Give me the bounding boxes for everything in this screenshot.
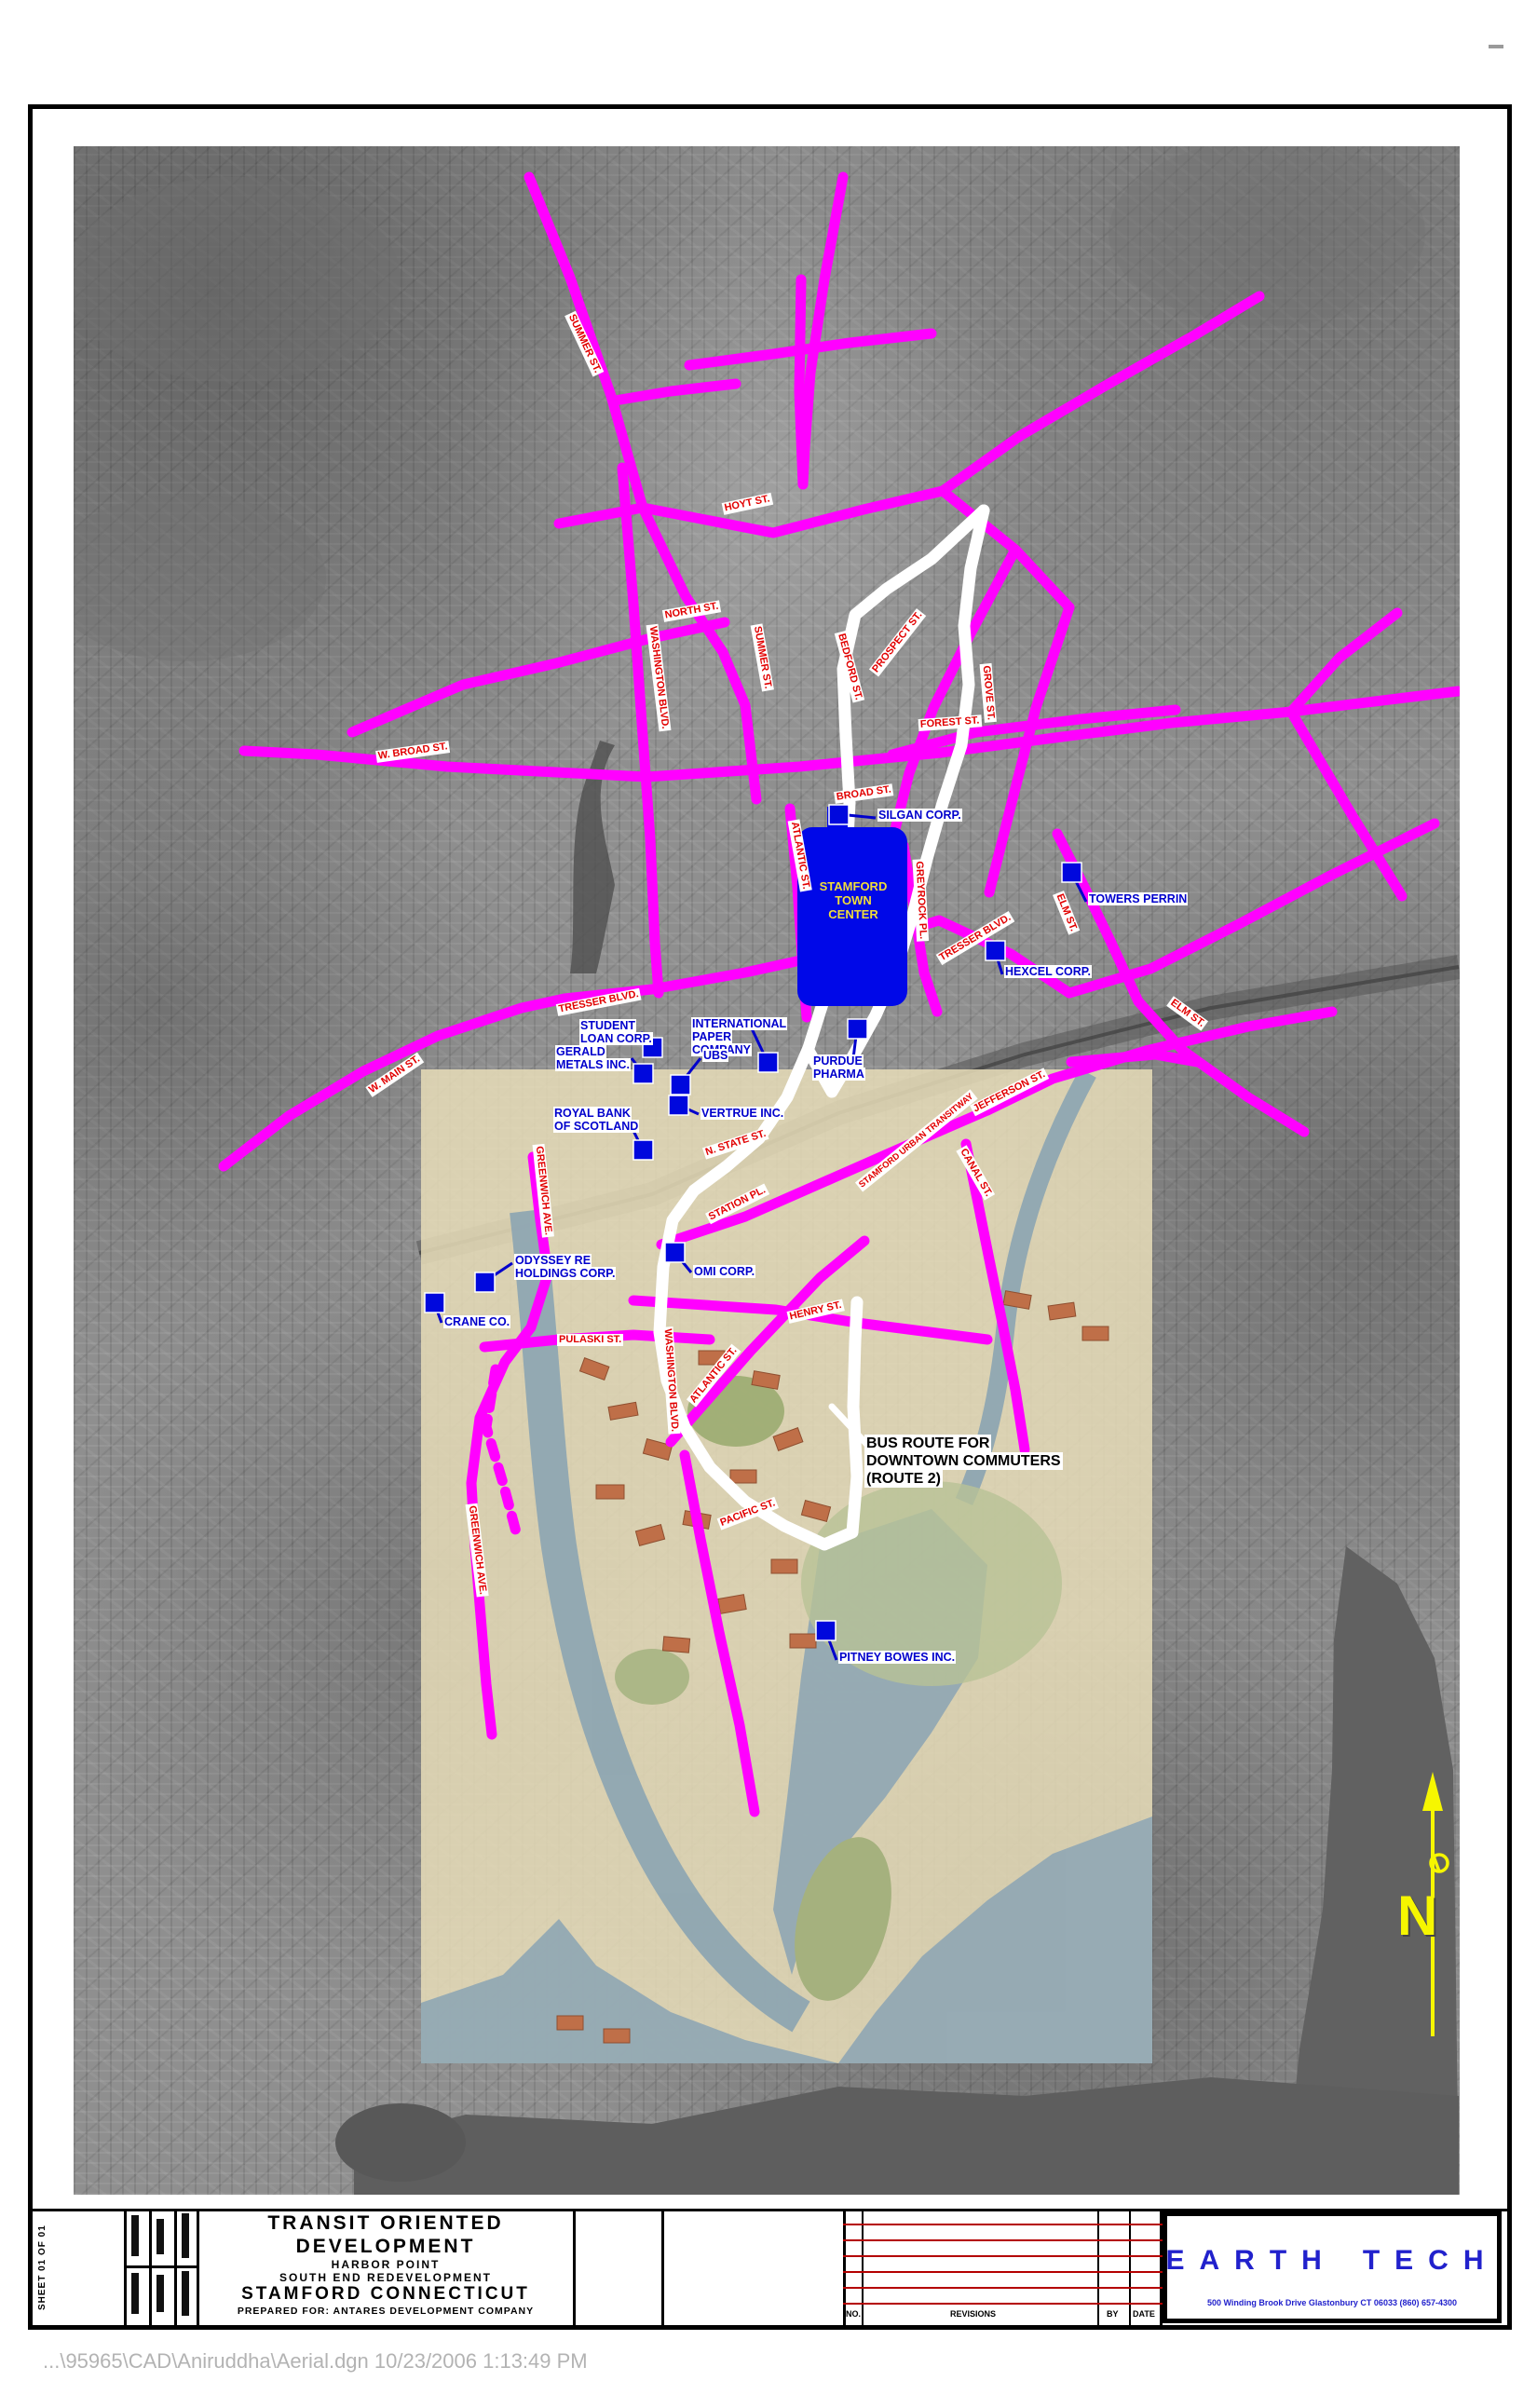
rev-col-revisions: REVISIONS — [950, 2309, 996, 2319]
logo-text-tech: TECH — [1363, 2245, 1499, 2277]
corner-mark — [1489, 45, 1503, 48]
sheet-subtitle-1: HARBOR POINT — [198, 2258, 573, 2271]
earth-tech-logo: EARTH TECH 500 Winding Brook Drive Glast… — [1163, 2211, 1502, 2323]
rev-col-no: NO. — [846, 2309, 861, 2319]
sheet-border-right — [1507, 104, 1512, 2330]
sheet-title: TRANSIT ORIENTED DEVELOPMENT — [198, 2211, 573, 2258]
sheet-border-top — [28, 104, 1512, 109]
aerial-photo — [74, 146, 1460, 2195]
title-block-titles: TRANSIT ORIENTED DEVELOPMENT HARBOR POIN… — [198, 2211, 573, 2318]
sheet-number-label: SHEET 01 OF 01 — [37, 2224, 58, 2310]
sheet-border-left — [28, 104, 33, 2330]
status-bar-path: ...\95965\CAD\Aniruddha\Aerial.dgn 10/23… — [43, 2349, 588, 2374]
rev-col-by: BY — [1107, 2309, 1119, 2319]
rev-col-date: DATE — [1133, 2309, 1155, 2319]
prepared-for: PREPARED FOR: ANTARES DEVELOPMENT COMPAN… — [198, 2305, 573, 2318]
sheet-border-bottom — [28, 2325, 1512, 2330]
sheet-subtitle-3: STAMFORD CONNECTICUT — [198, 2284, 573, 2305]
logo-address: 500 Winding Brook Drive Glastonbury CT 0… — [1167, 2298, 1497, 2307]
sheet-subtitle-2: SOUTH END REDEVELOPMENT — [198, 2271, 573, 2284]
logo-text-earth: EARTH — [1166, 2245, 1337, 2277]
plot-sheet-page: STAMFORD TOWN CENTER BUS ROUTE FOR DOWNT… — [0, 0, 1537, 2408]
